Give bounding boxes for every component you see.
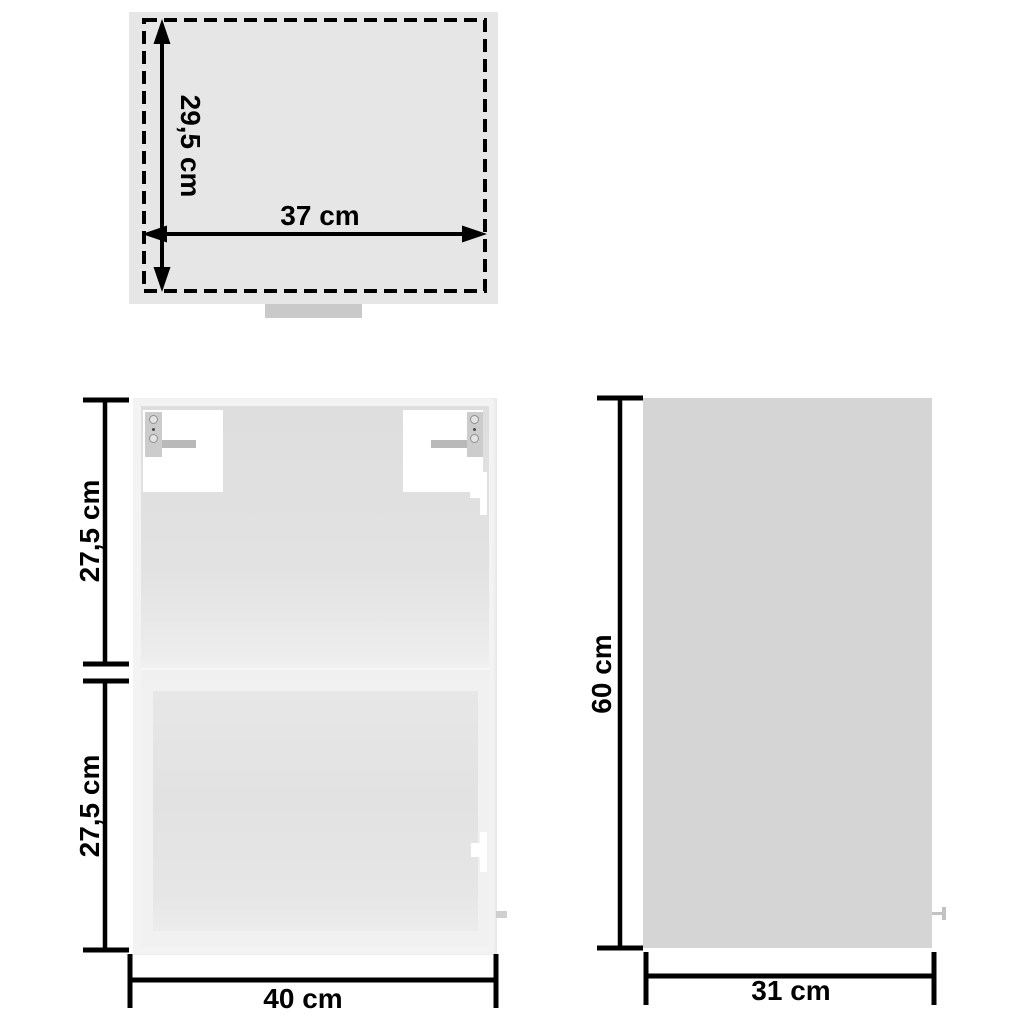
- bracket-arm-right: [431, 440, 467, 448]
- hinge-bottom-icon: [480, 832, 487, 872]
- front-lower-dimension-label: 27,5 cm: [76, 755, 104, 858]
- hinge-top-icon: [480, 472, 487, 515]
- bracket-arm-left: [162, 440, 196, 448]
- side-depth-dimension-label: 31 cm: [751, 977, 830, 1005]
- bracket-screw-icon: [470, 434, 479, 443]
- top-width-dimension-label: 37 cm: [280, 202, 359, 230]
- hinge-bottom-tab-icon: [471, 843, 481, 857]
- front-upper-dimension-label: 27,5 cm: [76, 480, 104, 583]
- side-panel: [643, 398, 932, 948]
- front-lower-door-glass: [153, 691, 478, 931]
- side-door-handle-knob: [942, 907, 946, 920]
- top-depth-dimension-label: 29,5 cm: [176, 95, 204, 198]
- bracket-screw-icon: [149, 434, 158, 443]
- front-view: [0, 380, 560, 1024]
- side-view: [560, 380, 1024, 1024]
- bracket-screw-icon: [470, 415, 479, 424]
- side-height-dimension-label: 60 cm: [588, 634, 616, 713]
- dimension-diagram: 29,5 cm 37 cm 27,5 cm 27,5 cm 40 cm 60 c…: [0, 0, 1024, 1024]
- bracket-screw-icon: [149, 415, 158, 424]
- front-door-handle: [496, 911, 507, 918]
- top-view-mount-tab: [265, 304, 362, 318]
- top-view: [0, 0, 560, 360]
- front-width-dimension-label: 40 cm: [263, 985, 342, 1013]
- bracket-pin-icon: [152, 428, 155, 431]
- bracket-pin-icon: [473, 428, 476, 431]
- hinge-top-tab-icon: [470, 487, 481, 498]
